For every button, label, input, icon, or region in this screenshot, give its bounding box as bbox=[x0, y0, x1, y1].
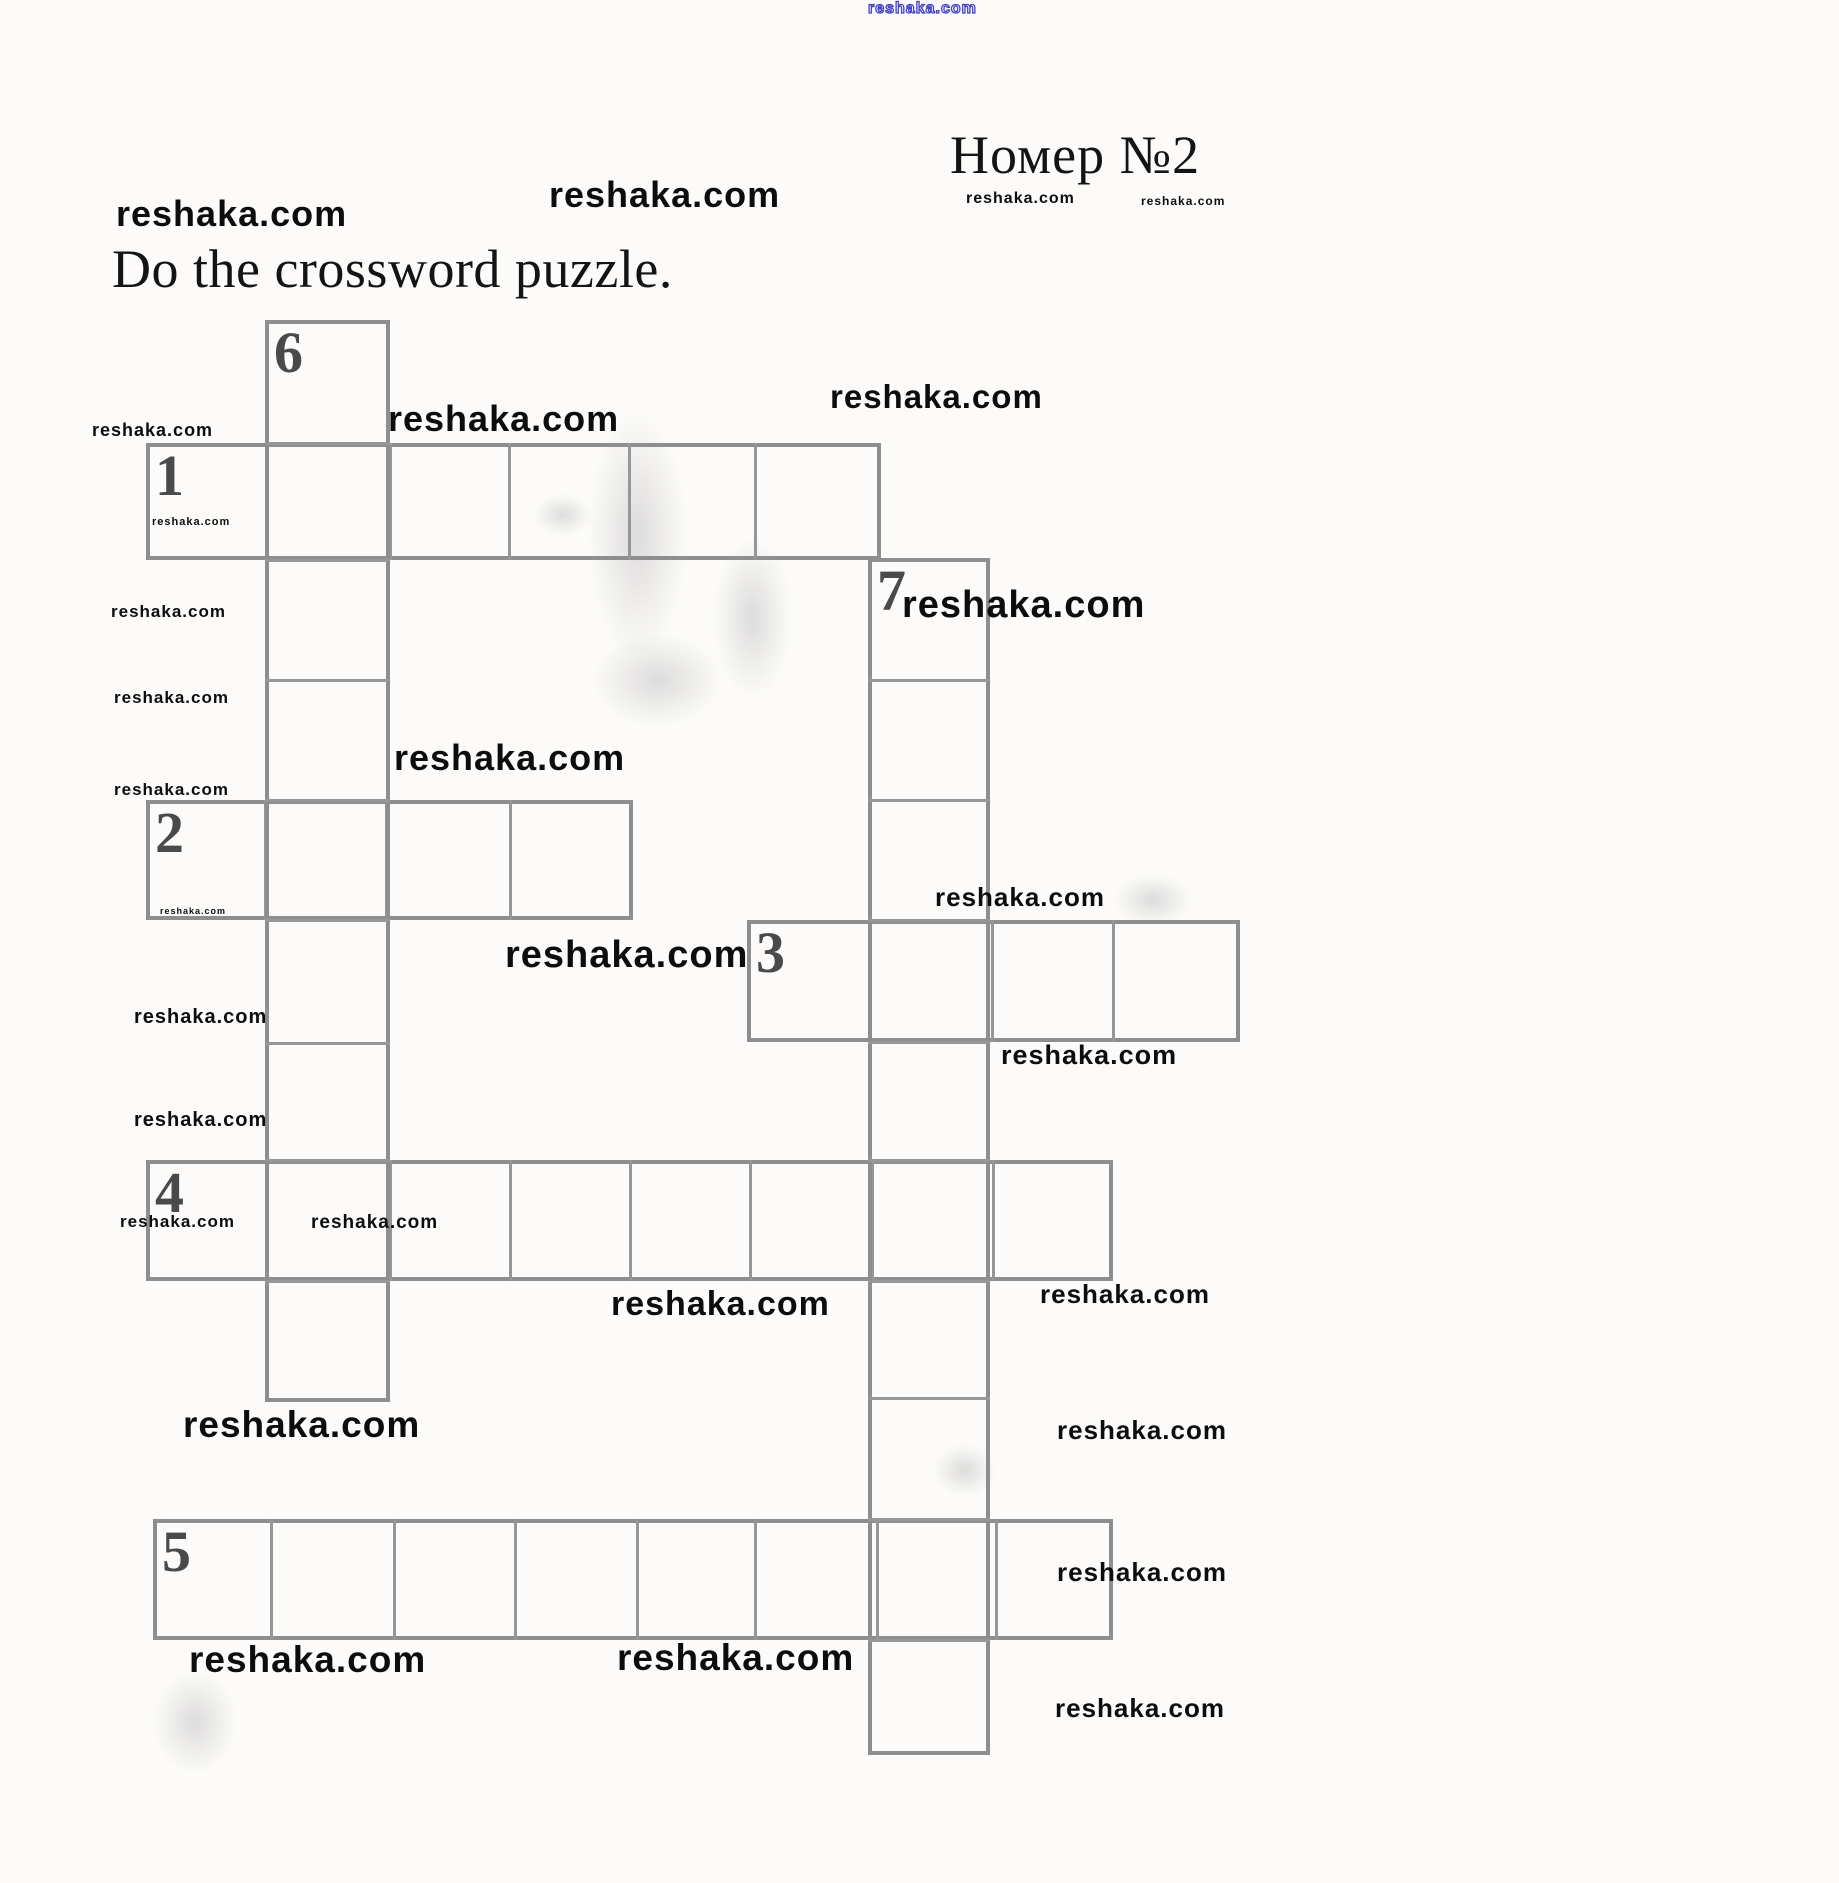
crossword-cell-1-3 bbox=[390, 443, 509, 560]
watermark-blue: reshaka.com bbox=[868, 1, 977, 17]
crossword-cell-1-5 bbox=[629, 443, 755, 560]
instruction-text: Do the crossword puzzle. bbox=[112, 240, 673, 299]
watermark: reshaka.com bbox=[1141, 195, 1225, 207]
crossword-cell-7-9 bbox=[868, 1519, 990, 1640]
crossword-cell-5-2 bbox=[271, 1519, 394, 1640]
crossword-cell-4-8 bbox=[993, 1160, 1113, 1281]
crossword-cell-5-3 bbox=[394, 1519, 515, 1640]
crossword-cell-5-5 bbox=[637, 1519, 755, 1640]
watermark: reshaka.com bbox=[183, 1406, 420, 1443]
crossword-cell-5-6 bbox=[755, 1519, 877, 1640]
crossword-cell-7-7 bbox=[868, 1281, 990, 1398]
crossword-cell-6-6 bbox=[265, 920, 390, 1043]
watermark: reshaka.com bbox=[134, 1007, 267, 1027]
watermark: reshaka.com bbox=[388, 401, 619, 437]
watermark: reshaka.com bbox=[617, 1639, 854, 1676]
scan-smudge bbox=[155, 1672, 235, 1772]
crossword-cell-7-8 bbox=[868, 1398, 990, 1519]
watermark: reshaka.com bbox=[152, 517, 230, 528]
crossword-cell-7-6 bbox=[868, 1160, 990, 1281]
watermark: reshaka.com bbox=[611, 1287, 830, 1321]
watermark: reshaka.com bbox=[120, 1213, 235, 1230]
watermark: reshaka.com bbox=[966, 191, 1075, 207]
watermark: reshaka.com bbox=[114, 781, 229, 798]
watermark: reshaka.com bbox=[1040, 1281, 1210, 1307]
crossword-cell-6-3 bbox=[265, 560, 390, 680]
watermark: reshaka.com bbox=[92, 421, 213, 439]
crossword-cell-4-5 bbox=[630, 1160, 750, 1281]
crossword-cell-1-4 bbox=[509, 443, 629, 560]
crossword-cell-6-4 bbox=[265, 680, 390, 800]
clue-number-5: 5 bbox=[162, 1523, 191, 1581]
crossword-cell-7-2 bbox=[868, 680, 990, 800]
watermark: reshaka.com bbox=[830, 380, 1043, 413]
crossword-cell-2-3 bbox=[386, 800, 510, 920]
watermark: reshaka.com bbox=[1055, 1695, 1225, 1721]
scanned-worksheet-page: Номер №2 Do the crossword puzzle. 123456… bbox=[0, 0, 1839, 1883]
crossword-cell-4-4 bbox=[510, 1160, 630, 1281]
crossword-cell-5-4 bbox=[515, 1519, 637, 1640]
watermark: reshaka.com bbox=[1001, 1042, 1177, 1069]
watermark: reshaka.com bbox=[394, 740, 625, 776]
crossword-cell-6-5 bbox=[265, 800, 390, 920]
scan-smudge bbox=[715, 540, 790, 695]
watermark: reshaka.com bbox=[189, 1641, 426, 1678]
watermark: reshaka.com bbox=[1057, 1559, 1227, 1585]
clue-number-3: 3 bbox=[756, 924, 785, 982]
watermark: reshaka.com bbox=[902, 586, 1145, 624]
scan-smudge bbox=[1115, 875, 1190, 925]
scan-smudge bbox=[595, 635, 720, 725]
watermark: reshaka.com bbox=[505, 936, 748, 974]
crossword-cell-6-7 bbox=[265, 1043, 390, 1160]
watermark: reshaka.com bbox=[311, 1213, 438, 1232]
watermark: reshaka.com bbox=[116, 196, 347, 232]
watermark: reshaka.com bbox=[111, 603, 226, 620]
crossword-cell-1-6 bbox=[755, 443, 881, 560]
clue-number-6: 6 bbox=[274, 324, 303, 382]
watermark: reshaka.com bbox=[160, 907, 226, 916]
crossword-cell-3-3 bbox=[992, 920, 1113, 1042]
clue-number-2: 2 bbox=[155, 804, 184, 862]
watermark: reshaka.com bbox=[114, 689, 229, 706]
page-title: Номер №2 bbox=[950, 126, 1200, 185]
crossword-cell-6-9 bbox=[265, 1281, 390, 1402]
crossword-cell-7-10 bbox=[868, 1640, 990, 1755]
crossword-cell-2-4 bbox=[510, 800, 633, 920]
watermark: reshaka.com bbox=[549, 177, 780, 213]
crossword-cell-7-4 bbox=[868, 920, 990, 1042]
clue-number-1: 1 bbox=[155, 447, 184, 505]
watermark: reshaka.com bbox=[1057, 1417, 1227, 1443]
crossword-cell-3-4 bbox=[1113, 920, 1240, 1042]
watermark: reshaka.com bbox=[935, 884, 1105, 910]
watermark: reshaka.com bbox=[134, 1110, 267, 1130]
crossword-cell-6-2 bbox=[265, 443, 390, 560]
crossword-cell-7-5 bbox=[868, 1042, 990, 1160]
crossword-cell-4-6 bbox=[750, 1160, 872, 1281]
